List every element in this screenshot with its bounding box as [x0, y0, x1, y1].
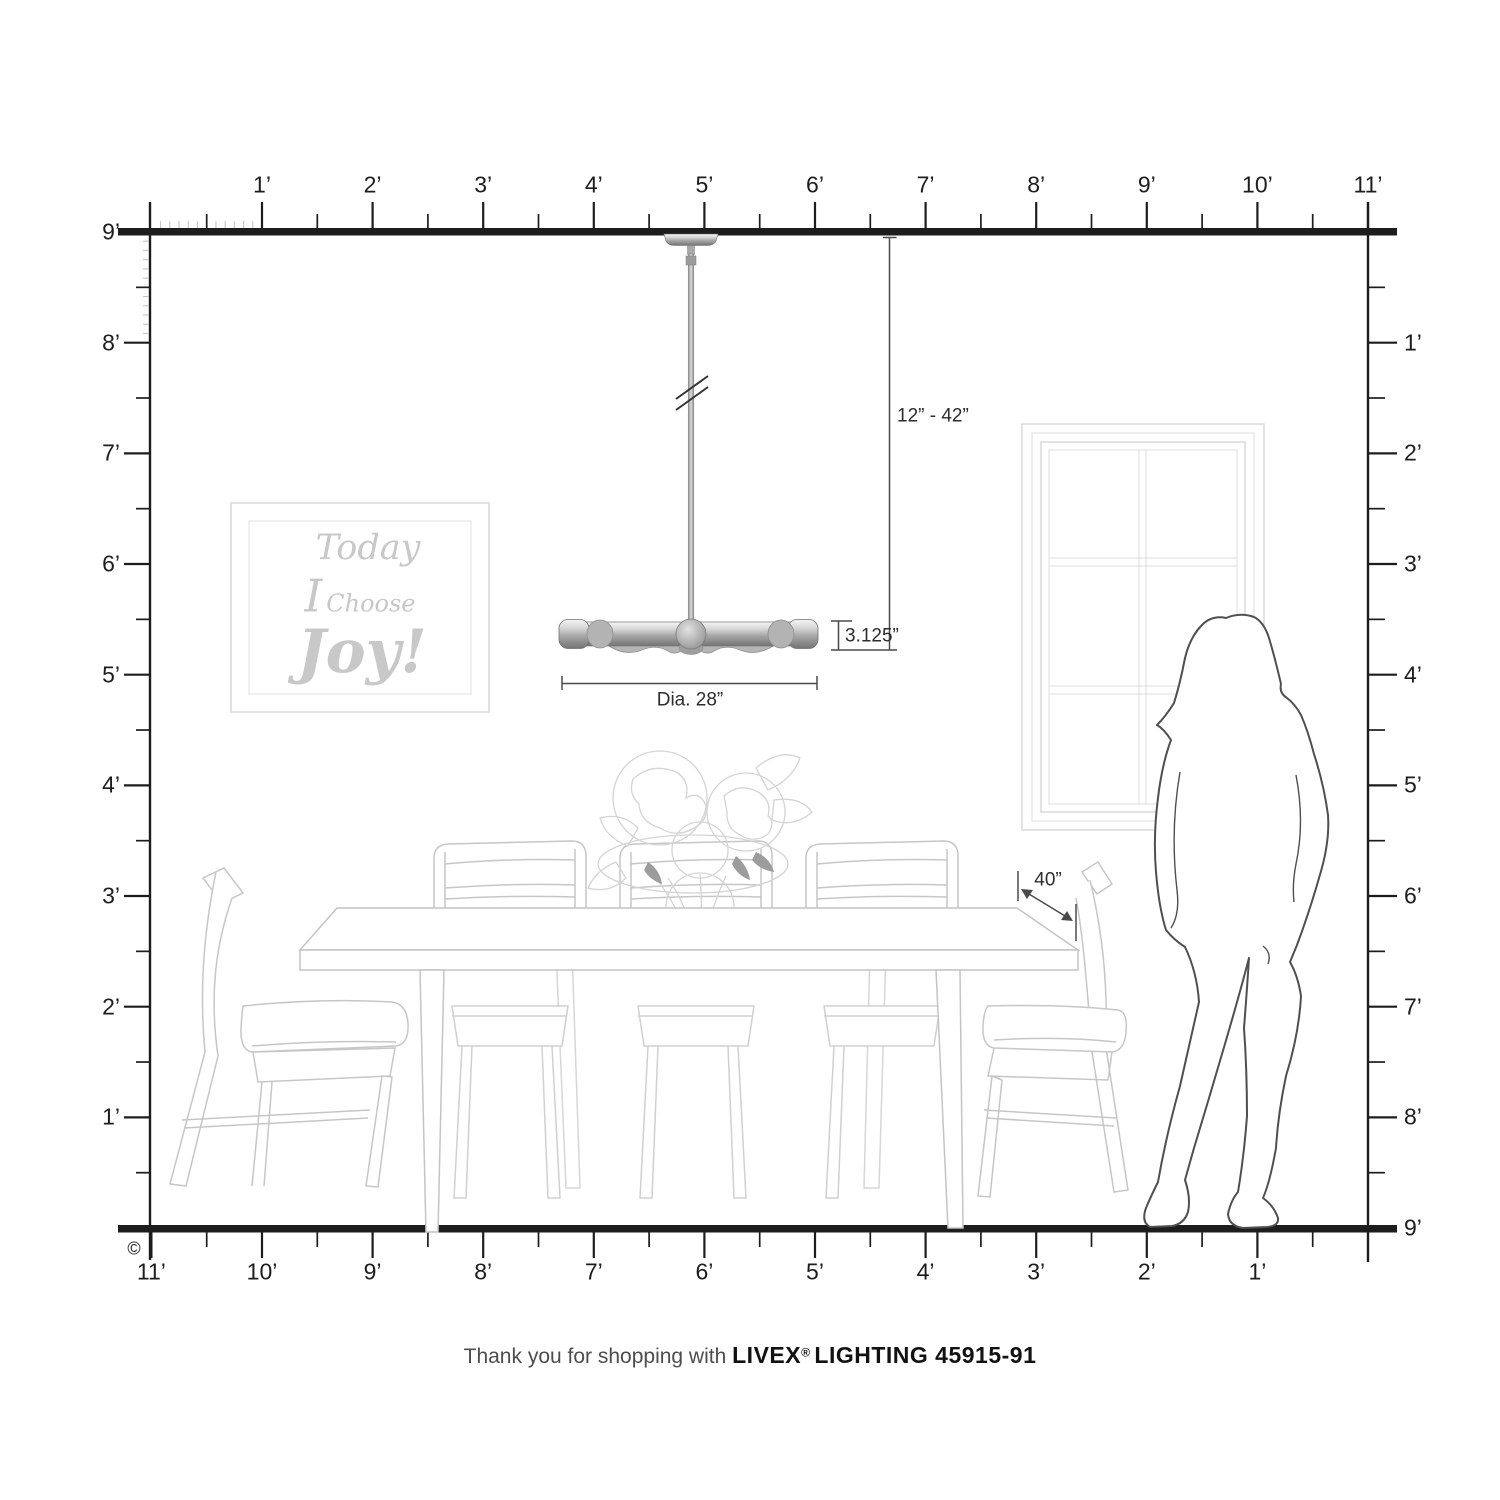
top-ruler-label-9: 9’ [1138, 174, 1156, 197]
bottom-ruler-label-2: 9’ [364, 1261, 382, 1284]
chair-back-right [806, 841, 958, 908]
diameter-line [562, 676, 817, 690]
footer-text: Thank you for shopping with LIVEX® LIGHT… [0, 1342, 1500, 1369]
hanging-rod [688, 254, 694, 628]
registered-mark: ® [801, 1346, 810, 1360]
right-ruler-label-7: 7’ [1404, 995, 1422, 1018]
left-ruler-label-3: 6’ [102, 553, 120, 576]
right-ruler-label-9: 9’ [1404, 1217, 1422, 1240]
scale-diagram-page: 12” - 42” 3.125” Dia. 28” 40” Today ICho… [0, 0, 1500, 1500]
bottom-ruler-label-7: 4’ [917, 1261, 935, 1284]
top-ruler-label-8: 8’ [1027, 174, 1045, 197]
bottom-ruler-label-5: 6’ [695, 1261, 713, 1284]
wall-art-initial: I [304, 570, 322, 623]
floor-bar [118, 1225, 1397, 1233]
table-width-label: 40” [1034, 871, 1061, 890]
left-ruler-label-5: 4’ [102, 774, 120, 797]
table-leg-front-left [420, 970, 444, 1232]
footer-product: LIGHTING 45915-91 [814, 1342, 1036, 1368]
bottom-ruler-label-4: 7’ [585, 1261, 603, 1284]
left-ruler-label-2: 7’ [102, 442, 120, 465]
bottom-ruler-label-3: 8’ [474, 1261, 492, 1284]
footer-prefix: Thank you for shopping with [464, 1345, 733, 1368]
footer-brand: LIVEX [732, 1342, 801, 1368]
top-ruler-label-10: 10’ [1242, 174, 1273, 197]
fixture-height-label: 3.125” [845, 627, 899, 646]
right-ruler-label-1: 1’ [1404, 331, 1422, 354]
bottom-ruler-label-1: 10’ [247, 1261, 278, 1284]
left-ruler-label-6: 3’ [102, 885, 120, 908]
right-ruler-label-4: 4’ [1404, 663, 1422, 686]
right-ruler-label-6: 6’ [1404, 885, 1422, 908]
hang-range-label: 12” - 42” [897, 407, 969, 426]
scene-illustration [0, 0, 1500, 1500]
top-ruler-label-11: 11’ [1354, 174, 1383, 197]
chair-back-left [434, 841, 586, 908]
left-ruler-label-8: 1’ [102, 1106, 120, 1129]
pendant-fixture [559, 234, 818, 655]
dining-table [300, 908, 1078, 1232]
right-ruler-label-5: 5’ [1404, 774, 1422, 797]
right-ruler-label-3: 3’ [1404, 553, 1422, 576]
dimension-lines [562, 237, 1076, 941]
ceiling-canopy [664, 234, 718, 246]
dining-chair-backs [434, 841, 958, 908]
bottom-ruler-label-8: 3’ [1027, 1261, 1045, 1284]
top-ruler-label-5: 5’ [695, 174, 713, 197]
wall-art-text-line3: Joy! [297, 617, 427, 687]
table-top [300, 908, 1078, 950]
hang-range-line [831, 237, 897, 650]
woman-silhouette [1144, 615, 1328, 1228]
table-leg-back-right [864, 950, 886, 1188]
left-ruler-label-4: 5’ [102, 663, 120, 686]
top-ruler-label-1: 1’ [253, 174, 271, 197]
ceiling-bar [118, 228, 1397, 236]
top-ruler-label-6: 6’ [806, 174, 824, 197]
table-front-edge [300, 950, 1078, 970]
top-ruler-label-4: 4’ [585, 174, 603, 197]
bottom-ruler-label-6: 5’ [806, 1261, 824, 1284]
left-ruler-label-0: 9’ [102, 221, 120, 244]
wall-art-choose: Choose [326, 590, 415, 618]
table-leg-back-left [556, 950, 580, 1188]
left-ruler-label-1: 8’ [102, 331, 120, 354]
right-ruler-label-8: 8’ [1404, 1106, 1422, 1129]
top-ruler-label-3: 3’ [474, 174, 492, 197]
copyright-symbol: © [127, 1239, 140, 1260]
table-leg-front-right [936, 970, 963, 1228]
wall-art-text-line2: IChoose [304, 570, 415, 623]
top-ruler-label-2: 2’ [364, 174, 382, 197]
bottom-ruler-label-9: 2’ [1138, 1261, 1156, 1284]
wall-art-text-line1: Today [316, 528, 421, 568]
top-ruler-label-7: 7’ [917, 174, 935, 197]
left-ruler-label-7: 2’ [102, 995, 120, 1018]
fixture-diameter-label: Dia. 28” [657, 691, 724, 710]
bottom-ruler-label-0: 11’ [137, 1261, 166, 1284]
fixture-body [559, 619, 818, 655]
right-ruler-label-2: 2’ [1404, 442, 1422, 465]
bottom-ruler-label-10: 1’ [1248, 1261, 1266, 1284]
